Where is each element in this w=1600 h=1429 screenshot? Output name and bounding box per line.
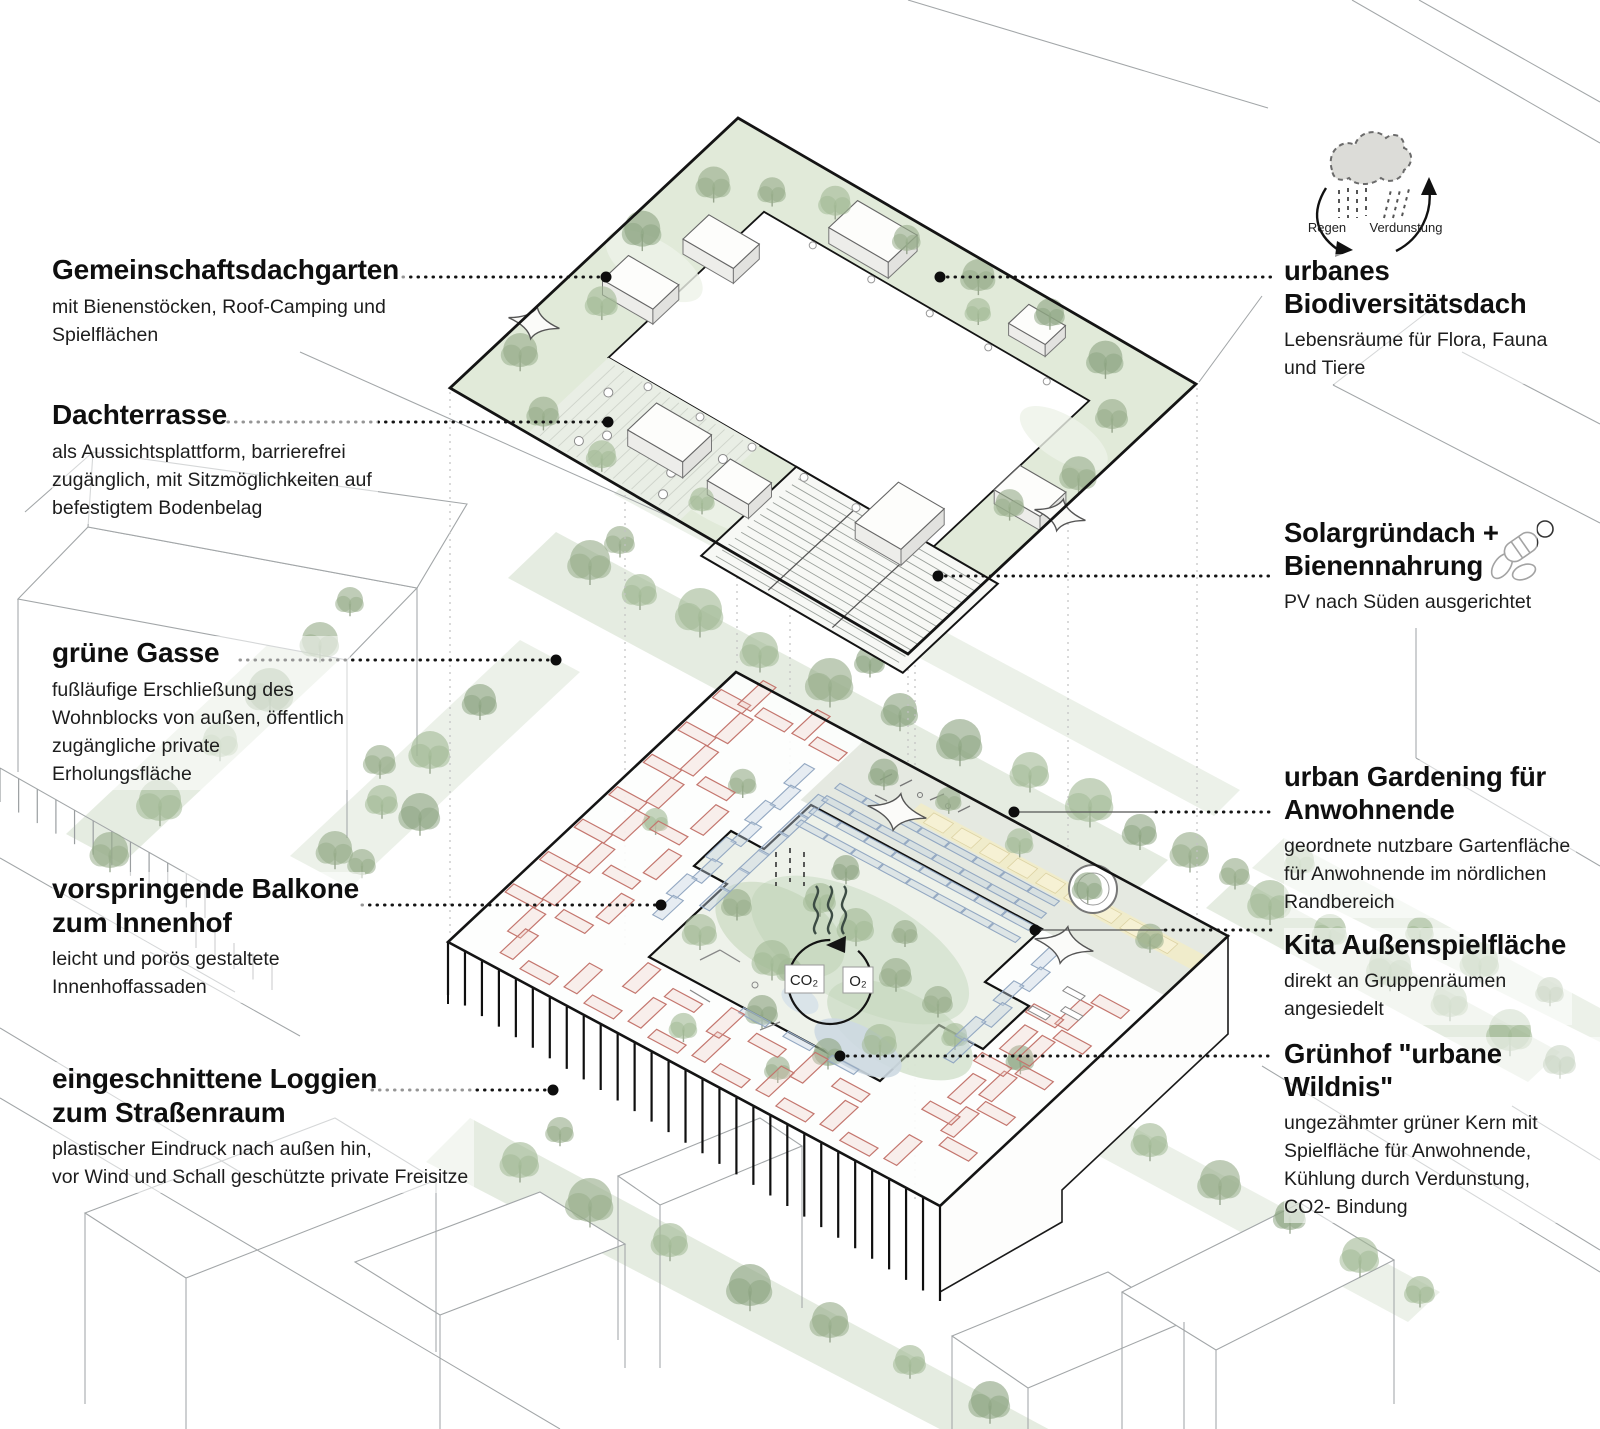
leader-dot bbox=[1009, 807, 1020, 818]
evaporation-dashes-icon bbox=[1384, 189, 1409, 218]
co2-label: CO₂ bbox=[790, 972, 819, 989]
leader-dot bbox=[1030, 925, 1041, 936]
rain-arrow-icon bbox=[1317, 188, 1337, 249]
leader-dot bbox=[551, 655, 562, 666]
leader-dot bbox=[603, 417, 614, 428]
o2-label: O₂ bbox=[849, 973, 867, 990]
leader-dot bbox=[601, 272, 612, 283]
axonometric-diagram: CO₂ O₂ Regen Verdunstung bbox=[0, 0, 1600, 1429]
bee-icon bbox=[1487, 521, 1553, 583]
cloud-icon bbox=[1331, 132, 1411, 184]
rain-dashes-icon bbox=[1339, 188, 1366, 218]
rain-label: Regen bbox=[1308, 220, 1346, 235]
evaporation-arrow-icon bbox=[1396, 187, 1430, 251]
leader-dot bbox=[835, 1051, 846, 1062]
rain-arrowhead bbox=[1335, 241, 1353, 257]
leader-dot bbox=[935, 272, 946, 283]
water-cycle-icon: Regen Verdunstung bbox=[1308, 132, 1443, 257]
leader-dot bbox=[548, 1085, 559, 1096]
evaporation-arrowhead bbox=[1421, 177, 1437, 195]
leader-dot bbox=[933, 571, 944, 582]
evaporation-label: Verdunstung bbox=[1369, 220, 1442, 235]
leader-dot bbox=[656, 900, 667, 911]
